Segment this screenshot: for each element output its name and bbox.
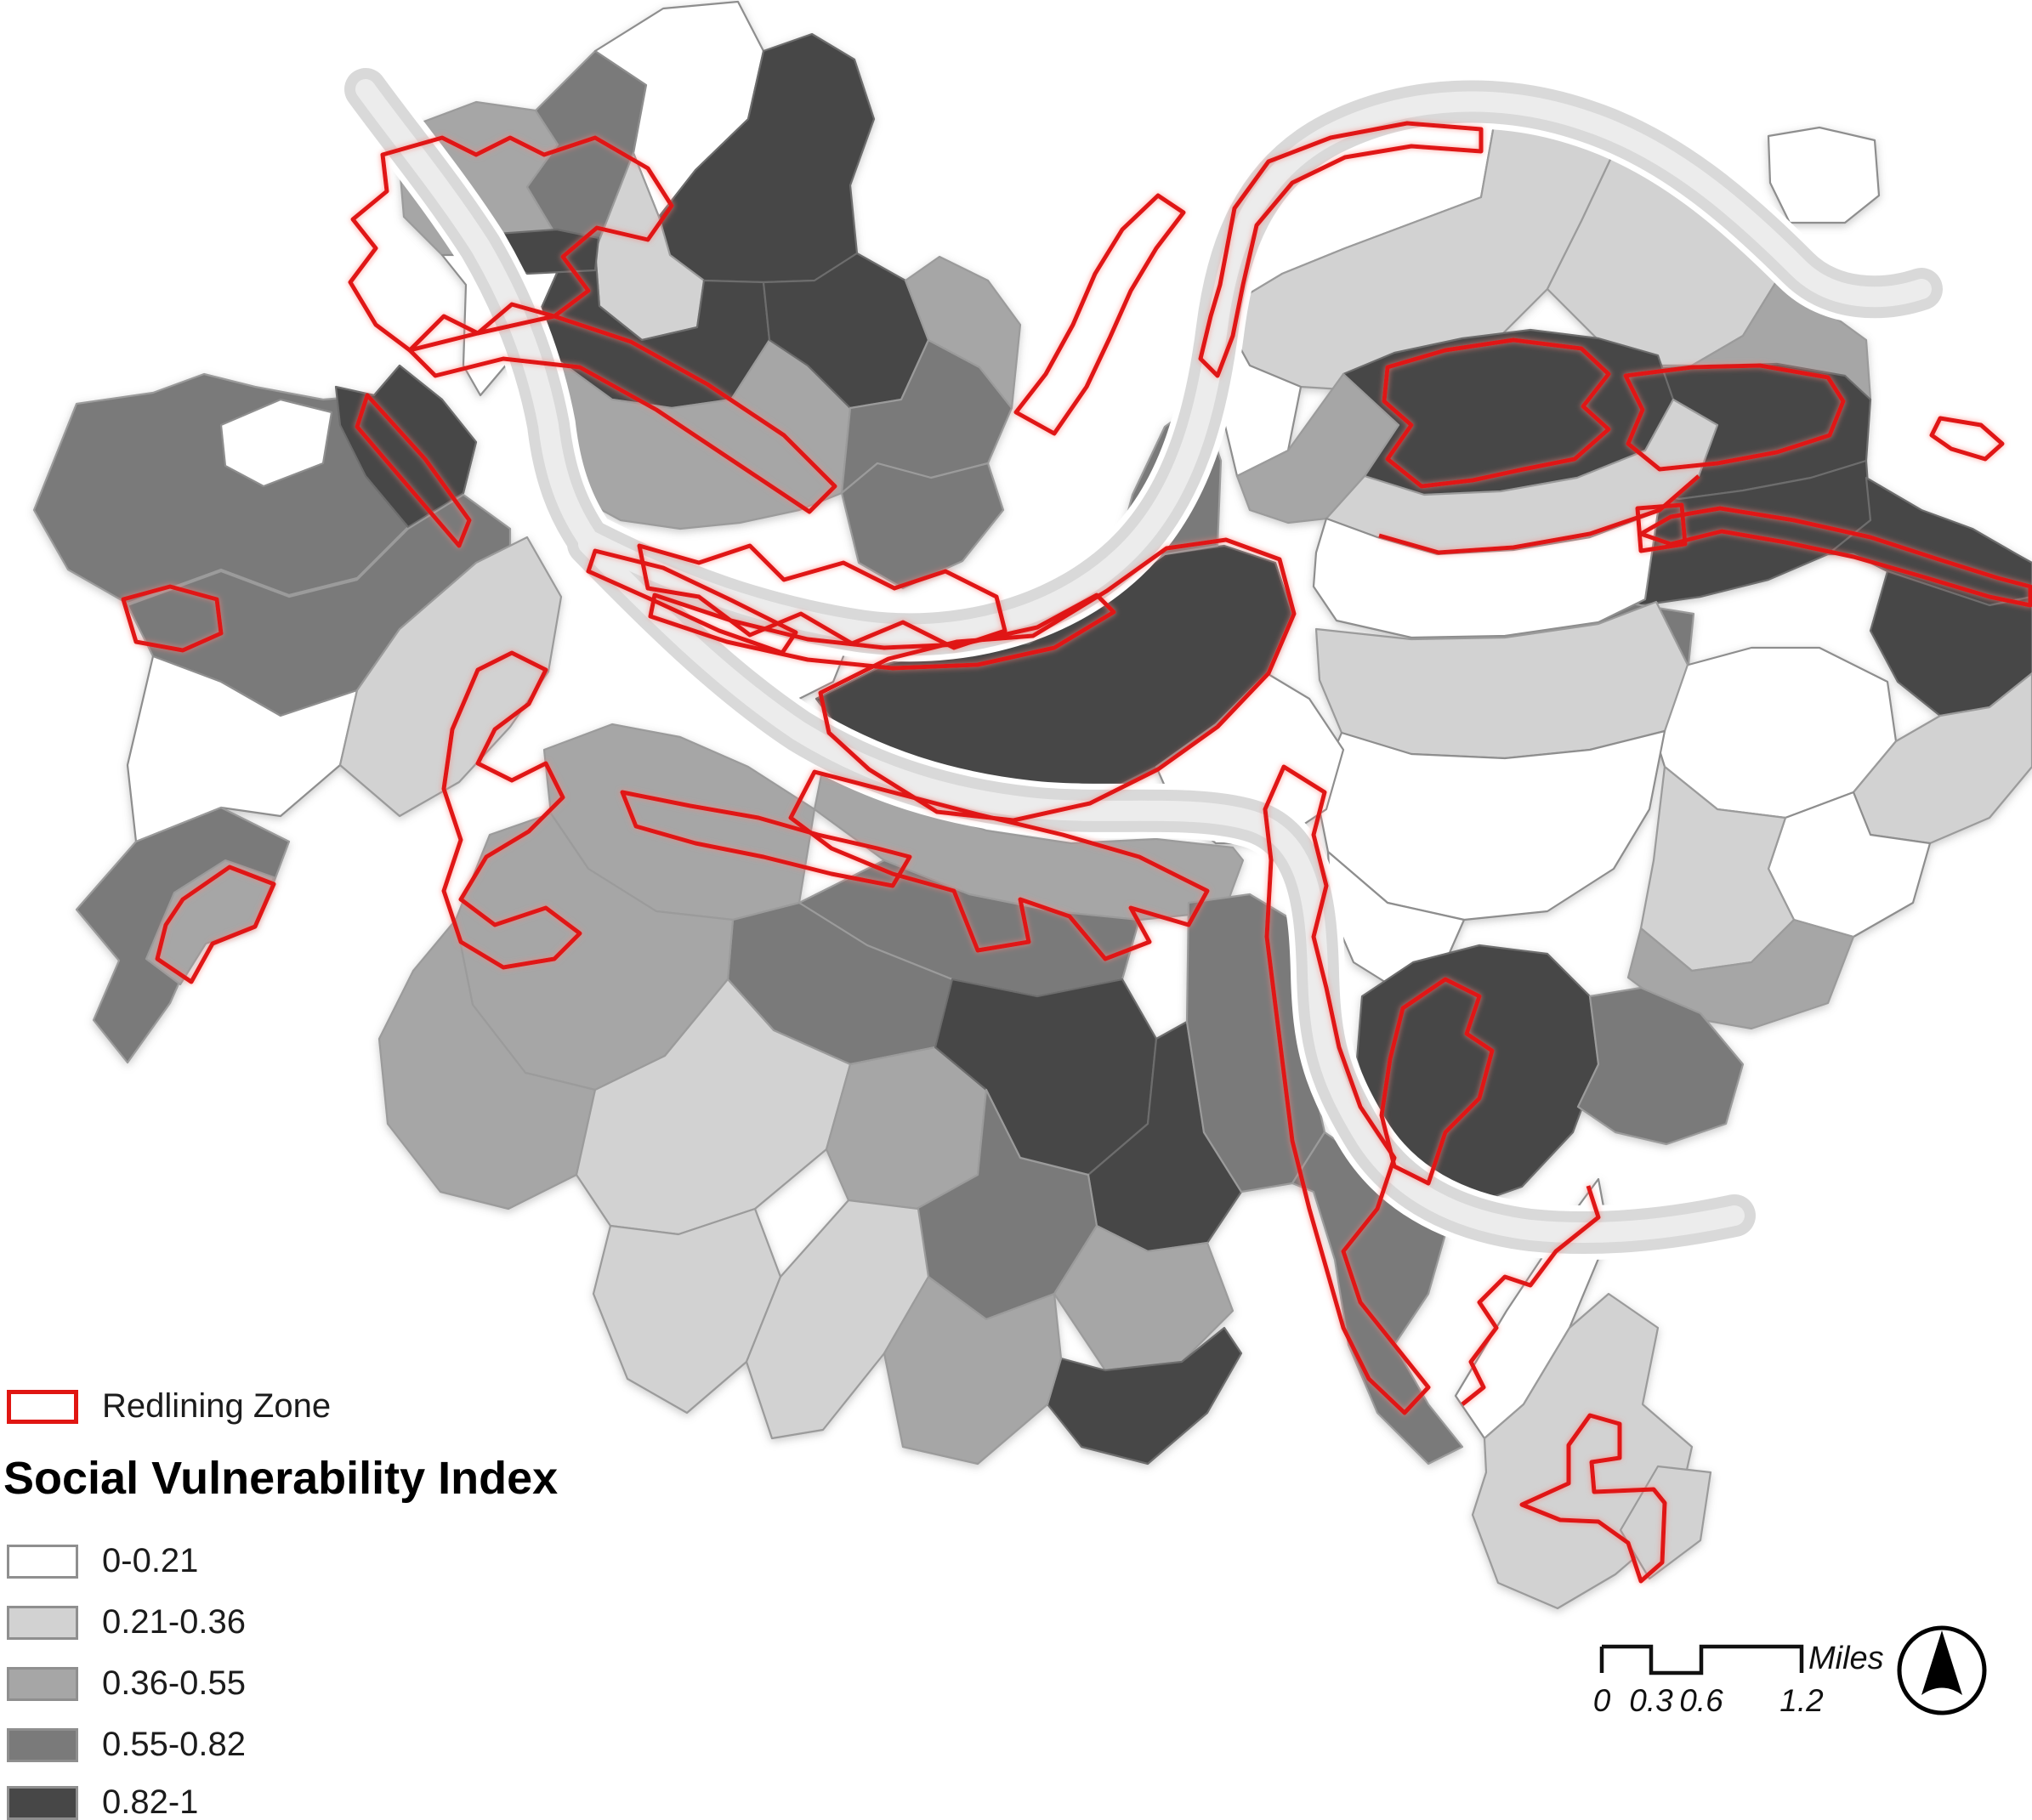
scalebar-unit-label: Miles <box>1808 1641 1884 1676</box>
census-tract <box>842 463 1003 588</box>
scalebar-bar <box>1602 1647 1802 1673</box>
map-canvas: 0 0.3 0.6 1.2 Miles <box>0 0 2032 1820</box>
scalebar-tick-3: 1.2 <box>1779 1683 1824 1718</box>
scalebar-tick-0: 0 <box>1593 1683 1611 1718</box>
scalebar-tick-1: 0.3 <box>1629 1683 1673 1718</box>
scalebar-tick-2: 0.6 <box>1679 1683 1723 1718</box>
scalebar: 0 0.3 0.6 1.2 Miles <box>1593 1641 1884 1718</box>
redlining-zone-outline <box>1016 196 1183 434</box>
map-page: 0 0.3 0.6 1.2 Miles Redlining Zone Socia… <box>0 0 2032 1820</box>
census-tract <box>1768 128 1879 223</box>
redlining-zone-outline <box>1932 418 2002 459</box>
north-arrow-icon <box>1899 1628 1984 1713</box>
